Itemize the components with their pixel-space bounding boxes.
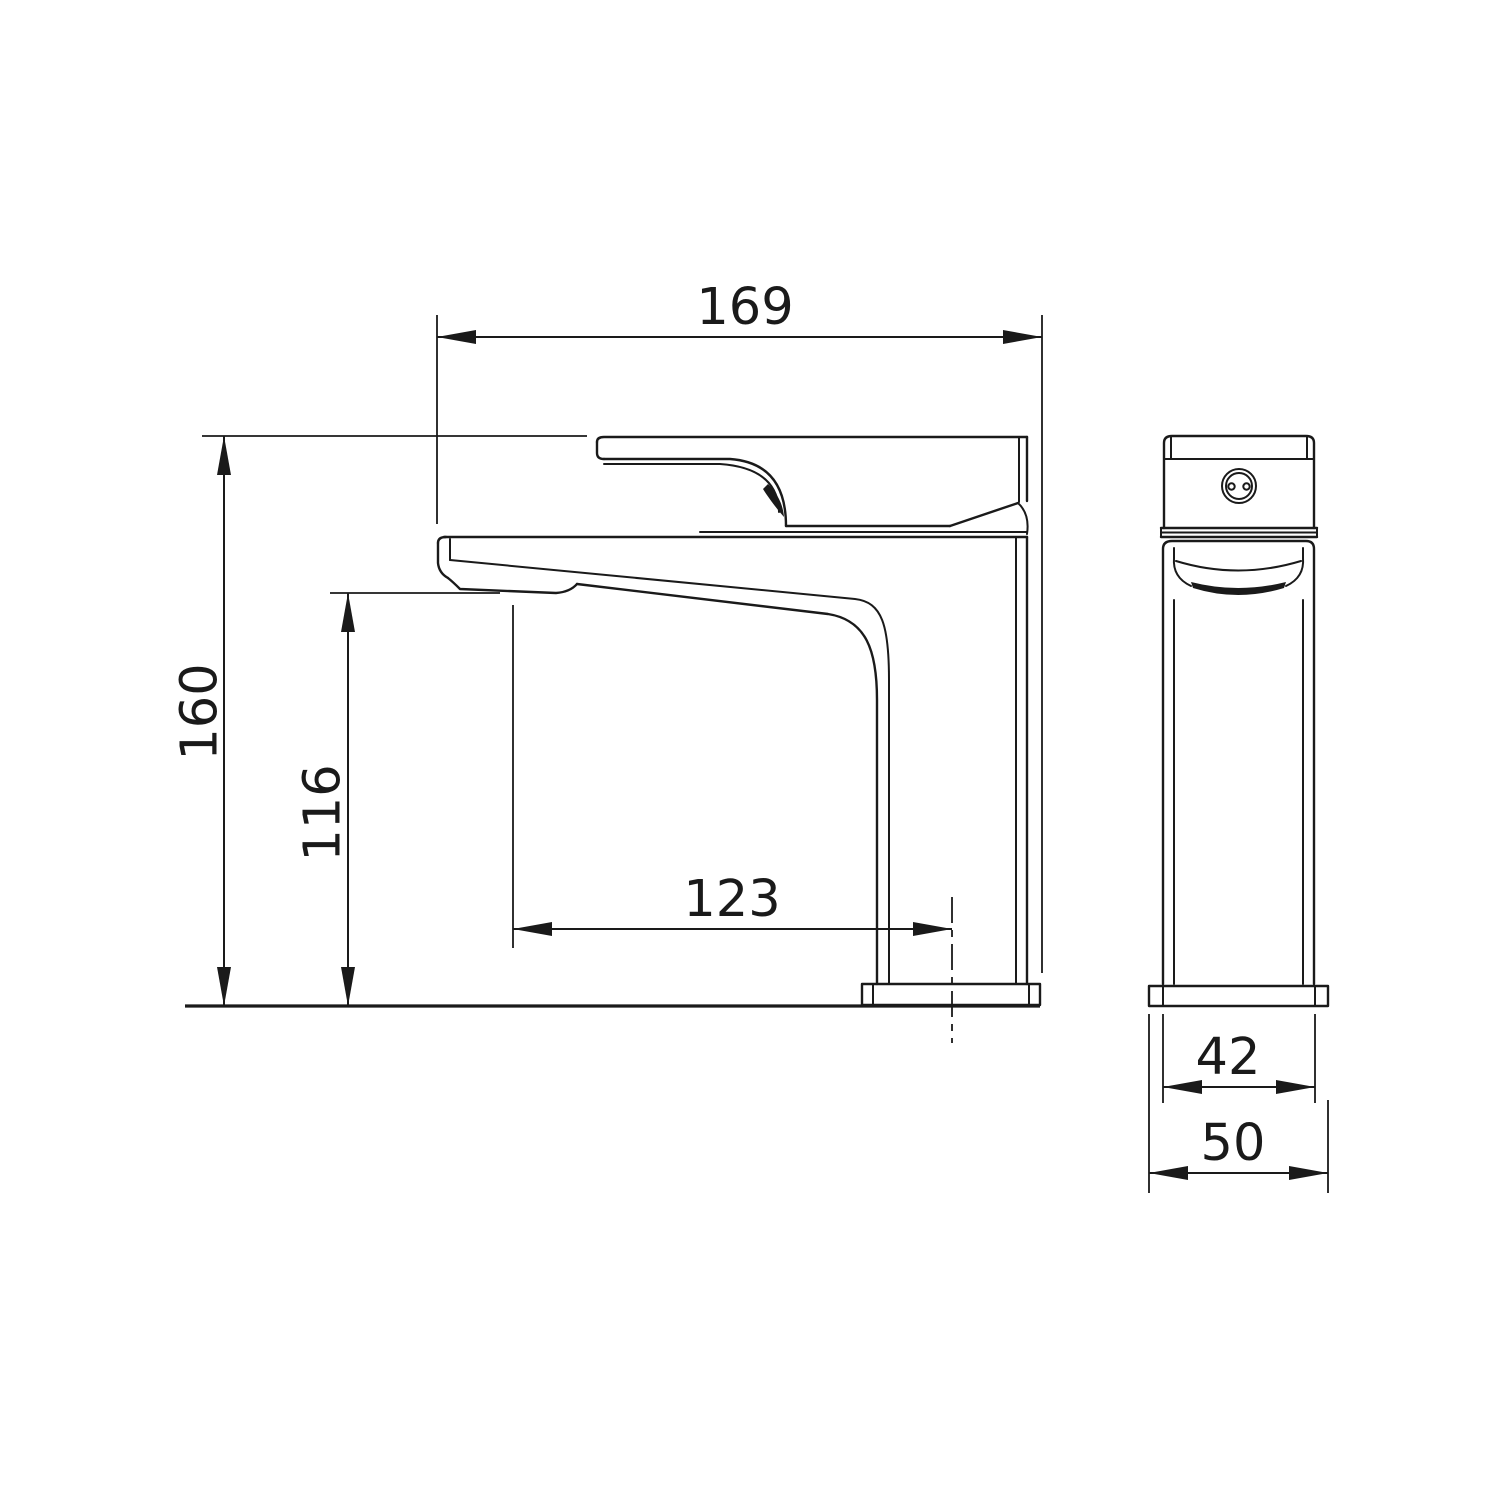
arrowhead-169-right xyxy=(1003,330,1042,344)
spout-opening-dark-arc xyxy=(1191,582,1286,595)
handle-top-edge xyxy=(597,437,1027,442)
dim-label-spout-reach: 123 xyxy=(683,870,780,929)
dimension-body-width: 42 xyxy=(1163,1014,1315,1103)
button-outer-ring xyxy=(1222,469,1256,503)
front-base xyxy=(1149,986,1328,1006)
arrowhead-123-left xyxy=(513,922,552,936)
dim-label-spout-height: 116 xyxy=(293,764,352,861)
dim-label-base-width: 50 xyxy=(1201,1114,1266,1173)
arrowhead-42-right xyxy=(1276,1080,1315,1094)
side-view xyxy=(185,437,1040,1043)
front-block-outline xyxy=(1164,436,1314,528)
arrowhead-160-top xyxy=(217,436,231,475)
faucet-technical-drawing: 169 160 116 123 42 5 xyxy=(0,0,1500,1500)
spout-lip-outline xyxy=(448,578,577,593)
arrowhead-116-bottom xyxy=(341,967,355,1006)
front-view xyxy=(1149,436,1328,1006)
spout-opening-upper-arc xyxy=(1176,561,1301,571)
front-base-plate-outline xyxy=(1149,986,1328,1006)
spout-front-corner xyxy=(438,537,446,543)
front-handle-block xyxy=(1164,436,1314,528)
dim-label-overall-height: 160 xyxy=(170,663,229,760)
spout-front-edge xyxy=(438,543,448,578)
body-back-corner-arc xyxy=(1018,503,1028,534)
button-left-dot xyxy=(1228,483,1234,489)
arrowhead-116-top xyxy=(341,593,355,632)
handle-left-edge xyxy=(597,442,604,459)
arrowhead-50-left xyxy=(1149,1166,1188,1180)
button-right-dot xyxy=(1243,483,1249,489)
spout-underside-inner xyxy=(450,560,889,984)
handle-underside-inner xyxy=(604,464,779,512)
dimension-overall-height: 160 xyxy=(170,436,587,1006)
dim-label-body-width: 42 xyxy=(1196,1028,1261,1087)
side-base xyxy=(185,897,1040,1043)
front-column-outline xyxy=(1163,541,1314,984)
handle-lever xyxy=(597,437,1028,534)
front-deck-band xyxy=(1161,528,1317,537)
handle-underside-outer xyxy=(604,459,786,526)
handle-back-bevel xyxy=(950,503,1018,526)
front-body-column xyxy=(1163,541,1314,984)
arrowhead-123-right xyxy=(913,922,952,936)
dim-label-overall-length: 169 xyxy=(696,278,793,337)
dimension-overall-length: 169 xyxy=(437,278,1042,973)
base-plate-outline xyxy=(862,984,1040,1005)
arrowhead-169-left xyxy=(437,330,476,344)
arrowhead-50-right xyxy=(1289,1166,1328,1180)
dimension-spout-reach: 123 xyxy=(513,605,952,948)
button-inner-ring xyxy=(1226,473,1252,499)
dimension-spout-height: 116 xyxy=(293,593,500,1006)
arrowhead-160-bottom xyxy=(217,967,231,1006)
